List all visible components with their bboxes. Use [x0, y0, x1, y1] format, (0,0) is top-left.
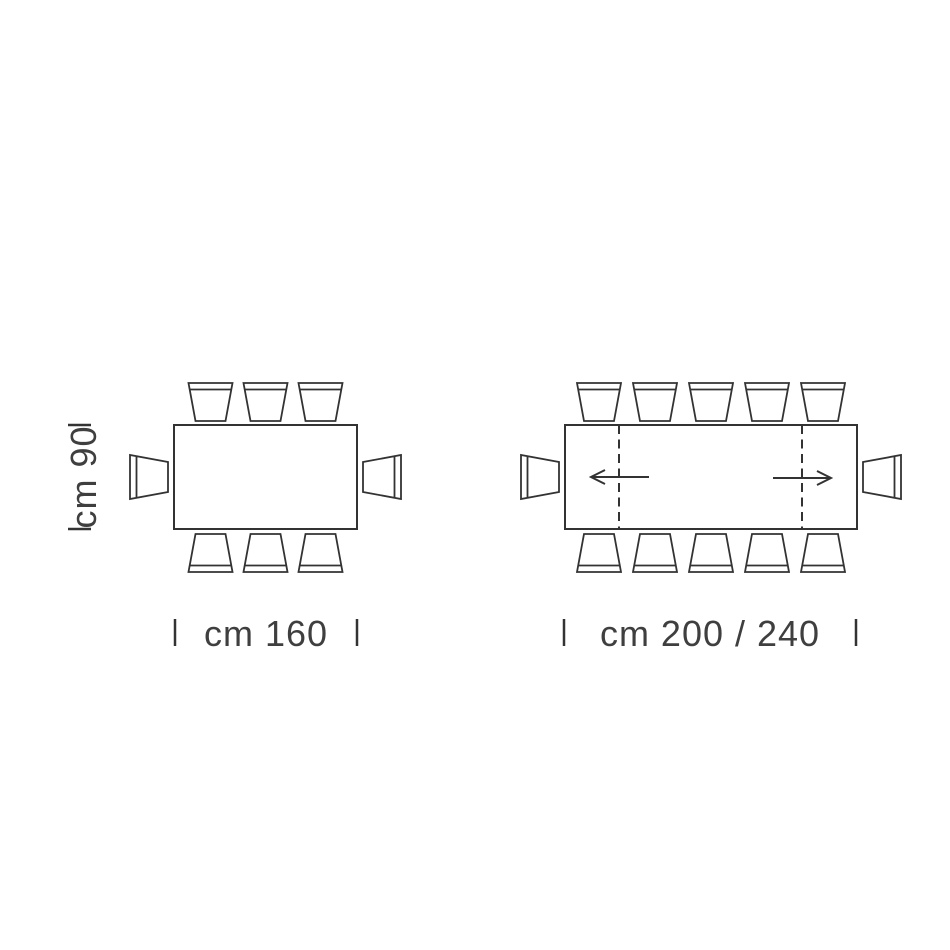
chair-bottom-2 — [244, 534, 288, 572]
fixed-table-group — [130, 383, 401, 572]
chair-top-5 — [801, 383, 845, 421]
chair-right-end — [363, 455, 401, 499]
chair-bottom-3 — [689, 534, 733, 572]
chair-bottom-4 — [745, 534, 789, 572]
chair-bottom-1 — [577, 534, 621, 572]
chair-bottom-2 — [633, 534, 677, 572]
chair-bottom-5 — [801, 534, 845, 572]
chair-left-end — [521, 455, 559, 499]
table-dimensions-diagram: cm 90 cm 160 cm 200 / 240 — [0, 0, 950, 950]
fixed-table-top — [174, 425, 357, 529]
chair-top-3 — [299, 383, 343, 421]
chair-top-3 — [689, 383, 733, 421]
extendable-table-width-label: cm 200 / 240 — [600, 613, 820, 654]
extendable-table-group — [521, 383, 901, 572]
fixed-table-width-dimension: cm 160 — [175, 613, 357, 654]
chair-top-1 — [577, 383, 621, 421]
fixed-table-width-label: cm 160 — [204, 613, 328, 654]
extendable-table-width-dimension: cm 200 / 240 — [564, 613, 856, 654]
chair-left-end — [130, 455, 168, 499]
chair-bottom-3 — [299, 534, 343, 572]
depth-dimension-label: cm 90 — [63, 425, 104, 528]
chair-top-2 — [244, 383, 288, 421]
depth-dimension: cm 90 — [63, 425, 104, 529]
chair-top-4 — [745, 383, 789, 421]
chair-right-end — [863, 455, 901, 499]
chair-bottom-1 — [189, 534, 233, 572]
diagram-canvas: cm 90 cm 160 cm 200 / 240 — [0, 0, 950, 950]
chair-top-2 — [633, 383, 677, 421]
chair-top-1 — [189, 383, 233, 421]
